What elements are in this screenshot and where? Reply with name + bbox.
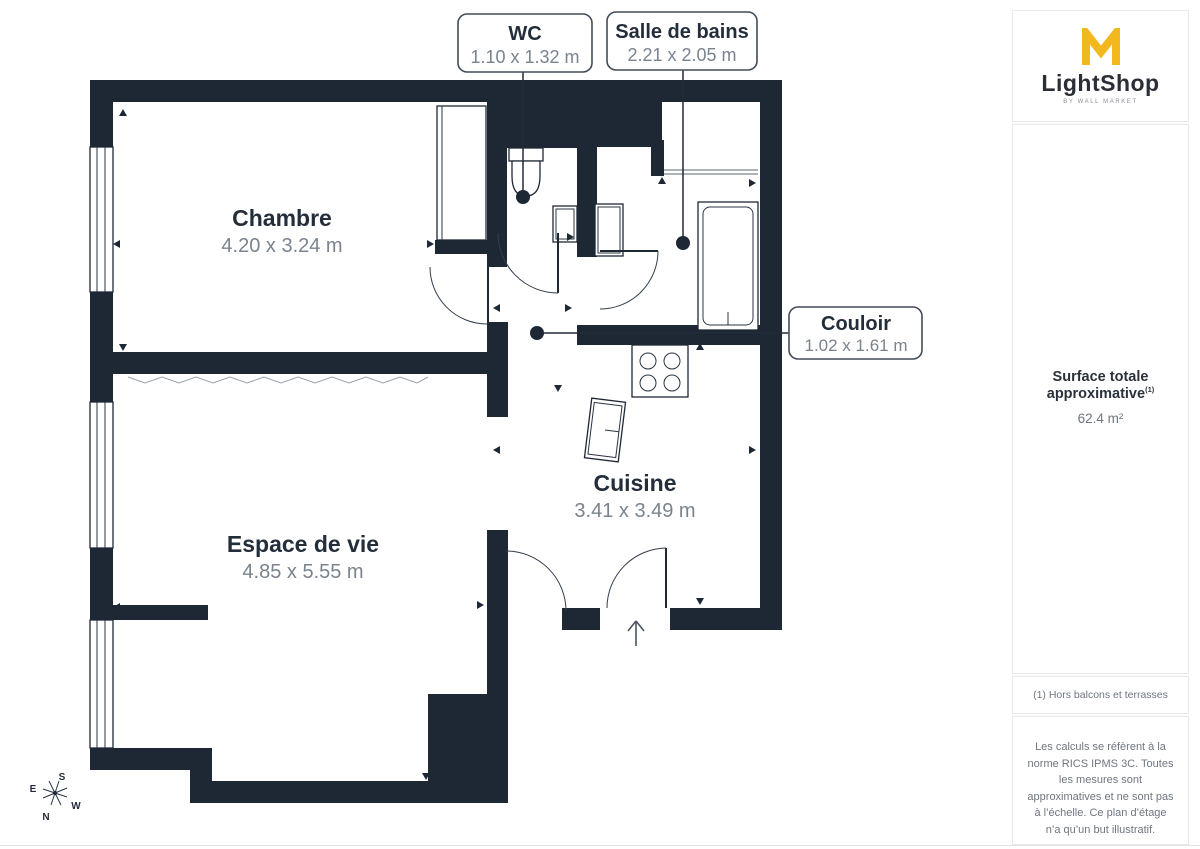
surface-superscript: (1) [1145,385,1154,394]
door-chambre [430,267,488,324]
door-entrance [607,548,666,608]
logo-panel: LightShop BY WALL MARKET [1012,10,1189,122]
room-chambre-dims: 4.20 x 3.24 m [221,235,342,257]
windows [90,147,113,748]
wc-sink [553,206,577,242]
bathtub [698,202,758,330]
room-cuisine-name: Cuisine [593,470,676,496]
room-espace-dims: 4.85 x 5.55 m [242,561,363,583]
toilet [509,148,543,196]
entrance-arrow [628,621,644,646]
door-living [506,551,566,611]
compass-south-label: S [59,772,66,783]
disclaimer-text: Les calculs se réfèrent à la norme RICS … [1026,739,1175,838]
closet [437,106,486,240]
door-salle-de-bains [600,251,658,309]
callout-wc-dims: 1.10 x 1.32 m [470,47,579,67]
brand-name: LightShop [1041,70,1159,97]
compass-rose: S E W N [30,772,82,823]
footnote-text: (1) Hors balcons et terrasses [1033,689,1168,701]
surface-label: Surface totale approximative(1) [1013,369,1188,402]
label-espace-de-vie: Espace de vie 4.85 x 5.55 m [227,531,379,583]
label-chambre: Chambre 4.20 x 3.24 m [221,205,342,257]
radiator-zigzag [128,377,428,383]
callout-wc-name: WC [508,23,541,45]
room-cuisine-dims: 3.41 x 3.49 m [574,500,695,522]
callout-couloir-dims: 1.02 x 1.61 m [804,336,907,355]
surface-value: 62.4 m² [1013,411,1188,426]
floor-plan-page: WC 1.10 x 1.32 m Salle de bains 2.21 x 2… [0,0,1200,849]
stove [632,345,688,397]
room-espace-name: Espace de vie [227,531,379,557]
dimension-arrows [113,109,756,780]
callout-wc: WC 1.10 x 1.32 m [458,14,592,72]
compass-north-label: N [42,812,49,823]
walls [90,80,782,803]
compass-west-label: W [71,801,81,812]
callout-salle-de-bains: Salle de bains 2.21 x 2.05 m [607,12,757,70]
lightshop-logo-icon [1080,28,1122,68]
callout-couloir: Couloir 1.02 x 1.61 m [789,307,922,359]
shower-partition [664,170,758,174]
callout-sdb-dims: 2.21 x 2.05 m [627,45,736,65]
room-chambre-name: Chambre [232,205,332,231]
surface-label-text: Surface totale approximative [1047,369,1149,402]
bathroom-sink [595,204,623,256]
floor-plan-svg: WC 1.10 x 1.32 m Salle de bains 2.21 x 2… [0,0,1000,849]
legal-panel: Les calculs se réfèrent à la norme RICS … [1012,716,1189,845]
footnote-panel: (1) Hors balcons et terrasses [1012,676,1189,714]
label-cuisine: Cuisine 3.41 x 3.49 m [574,470,695,522]
kitchen-sink [584,398,625,462]
callout-sdb-name: Salle de bains [615,21,748,43]
brand-tagline: BY WALL MARKET [1063,99,1138,105]
window-living-upper [90,402,113,548]
window-living-lower [90,620,113,748]
compass-east-label: E [30,784,37,795]
surface-panel: Surface totale approximative(1) 62.4 m² [1012,124,1189,674]
window-chambre [90,147,113,292]
callout-couloir-name: Couloir [821,313,891,335]
doors [430,233,666,646]
page-bottom-divider [0,845,1200,846]
